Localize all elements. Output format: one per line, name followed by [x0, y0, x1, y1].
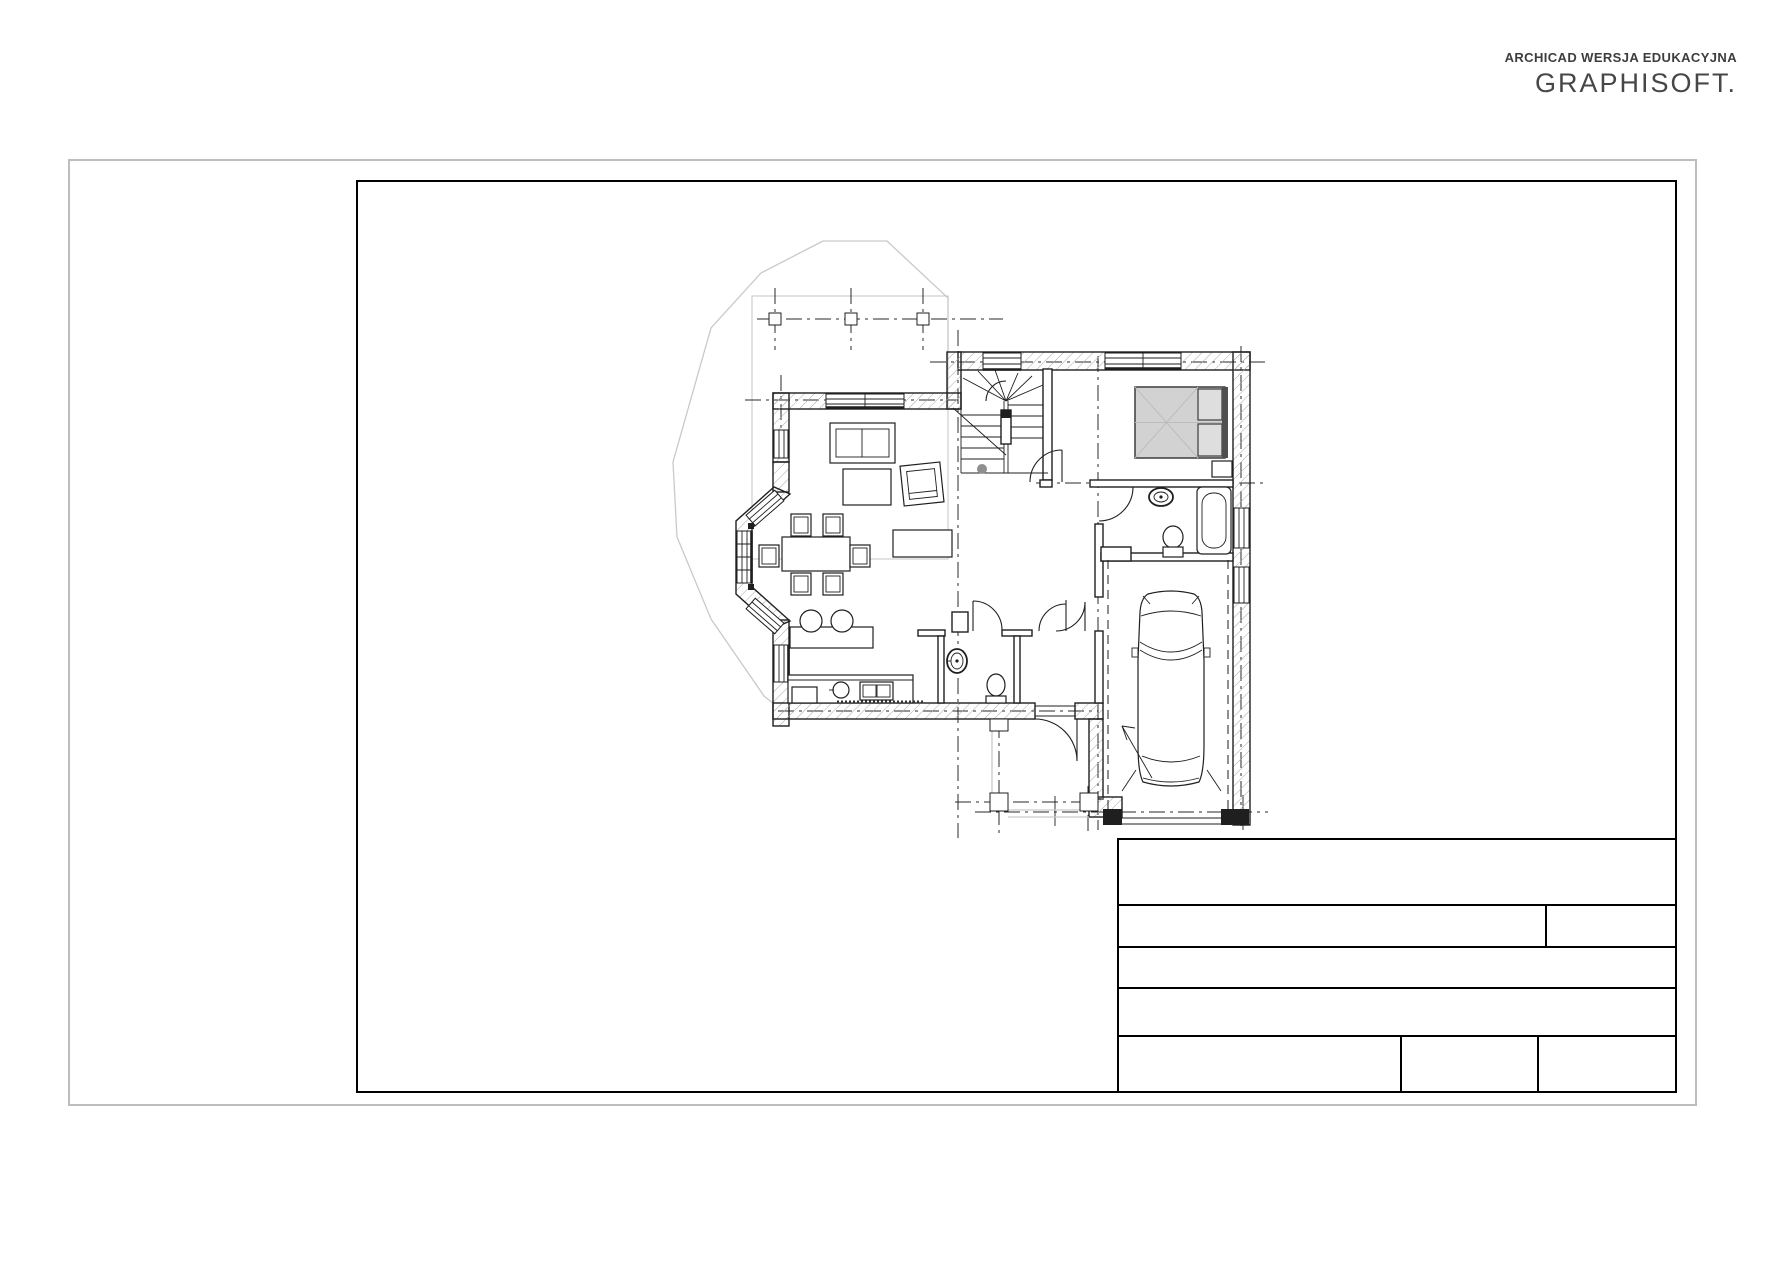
garage-door-threshold [1122, 818, 1221, 824]
kitchen-counter [790, 627, 873, 648]
dining-table [782, 537, 850, 571]
pillow [1198, 424, 1222, 456]
stove [860, 682, 893, 700]
window [1234, 508, 1249, 548]
hall-door [1056, 602, 1085, 631]
title-block-divider [1545, 906, 1547, 946]
window [983, 353, 1021, 370]
title-block-line [1119, 987, 1675, 989]
garage-hall-door [1039, 600, 1066, 631]
winder-staircase [953, 370, 1048, 474]
double-bed [1135, 387, 1228, 458]
title-block-line [1119, 904, 1675, 906]
window [737, 531, 752, 583]
sofa [830, 423, 895, 463]
bathtub [1197, 487, 1231, 554]
bathroom-door [1099, 487, 1133, 521]
kitchen-stool [800, 610, 822, 632]
window [1105, 353, 1181, 369]
car [1132, 591, 1210, 786]
garage [1108, 560, 1228, 815]
wc-door [973, 601, 1002, 631]
window [1234, 567, 1249, 603]
title-block-cell [1123, 1039, 1396, 1087]
entry-porch-column [990, 793, 1008, 811]
kitchen [788, 610, 923, 703]
kitchen-stool [831, 610, 853, 632]
title-block [1117, 838, 1677, 1093]
title-block-divider [1400, 1037, 1402, 1091]
window [774, 430, 788, 458]
column-grid-marker [845, 313, 857, 325]
nightstand [1212, 461, 1232, 477]
entry-porch-column [990, 719, 1008, 731]
tv-sideboard [893, 530, 952, 557]
kitchen-sink [833, 682, 849, 698]
stair-column-dot [977, 464, 987, 474]
title-block-divider [1537, 1037, 1539, 1091]
title-block-cell [1541, 1039, 1671, 1087]
column-grid-marker [917, 313, 929, 325]
title-block-line [1119, 946, 1675, 948]
headboard [1222, 387, 1228, 458]
armchair [900, 462, 944, 506]
title-block-cell [1123, 950, 1671, 983]
title-block-cell [1549, 910, 1671, 942]
title-block-line [1119, 1035, 1675, 1037]
title-block-cell [1123, 844, 1671, 900]
pillow [1198, 389, 1222, 420]
window [774, 645, 789, 682]
coffee-table [843, 469, 891, 505]
wc-washbasin [947, 649, 967, 673]
column-grid-marker [769, 313, 781, 325]
entry-door [1035, 719, 1077, 761]
entry-porch-column [1080, 793, 1098, 811]
title-block-cell [1404, 1039, 1533, 1087]
title-block-cell [1123, 910, 1541, 942]
window [826, 394, 904, 408]
bathroom-toilet [1163, 526, 1183, 557]
title-block-cell [1123, 991, 1671, 1031]
wc-toilet [986, 674, 1006, 703]
bathroom-washbasin [1149, 488, 1173, 506]
